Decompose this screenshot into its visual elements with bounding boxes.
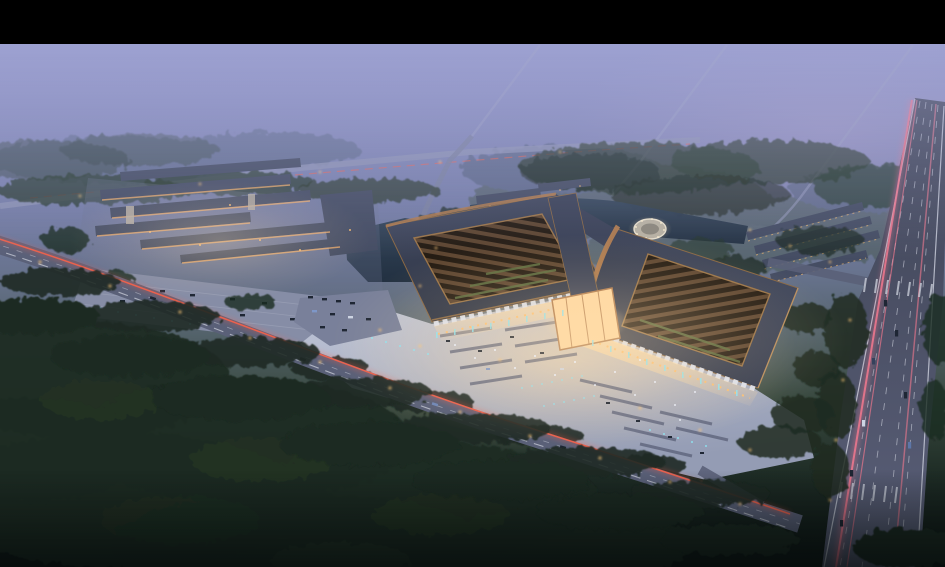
main-complex-glow (330, 235, 850, 445)
letterbox-top (0, 0, 945, 44)
mist-overlay (0, 44, 945, 260)
bottom-shade (0, 470, 945, 567)
aerial-rendering (0, 0, 945, 567)
rendering-frame (0, 0, 945, 567)
